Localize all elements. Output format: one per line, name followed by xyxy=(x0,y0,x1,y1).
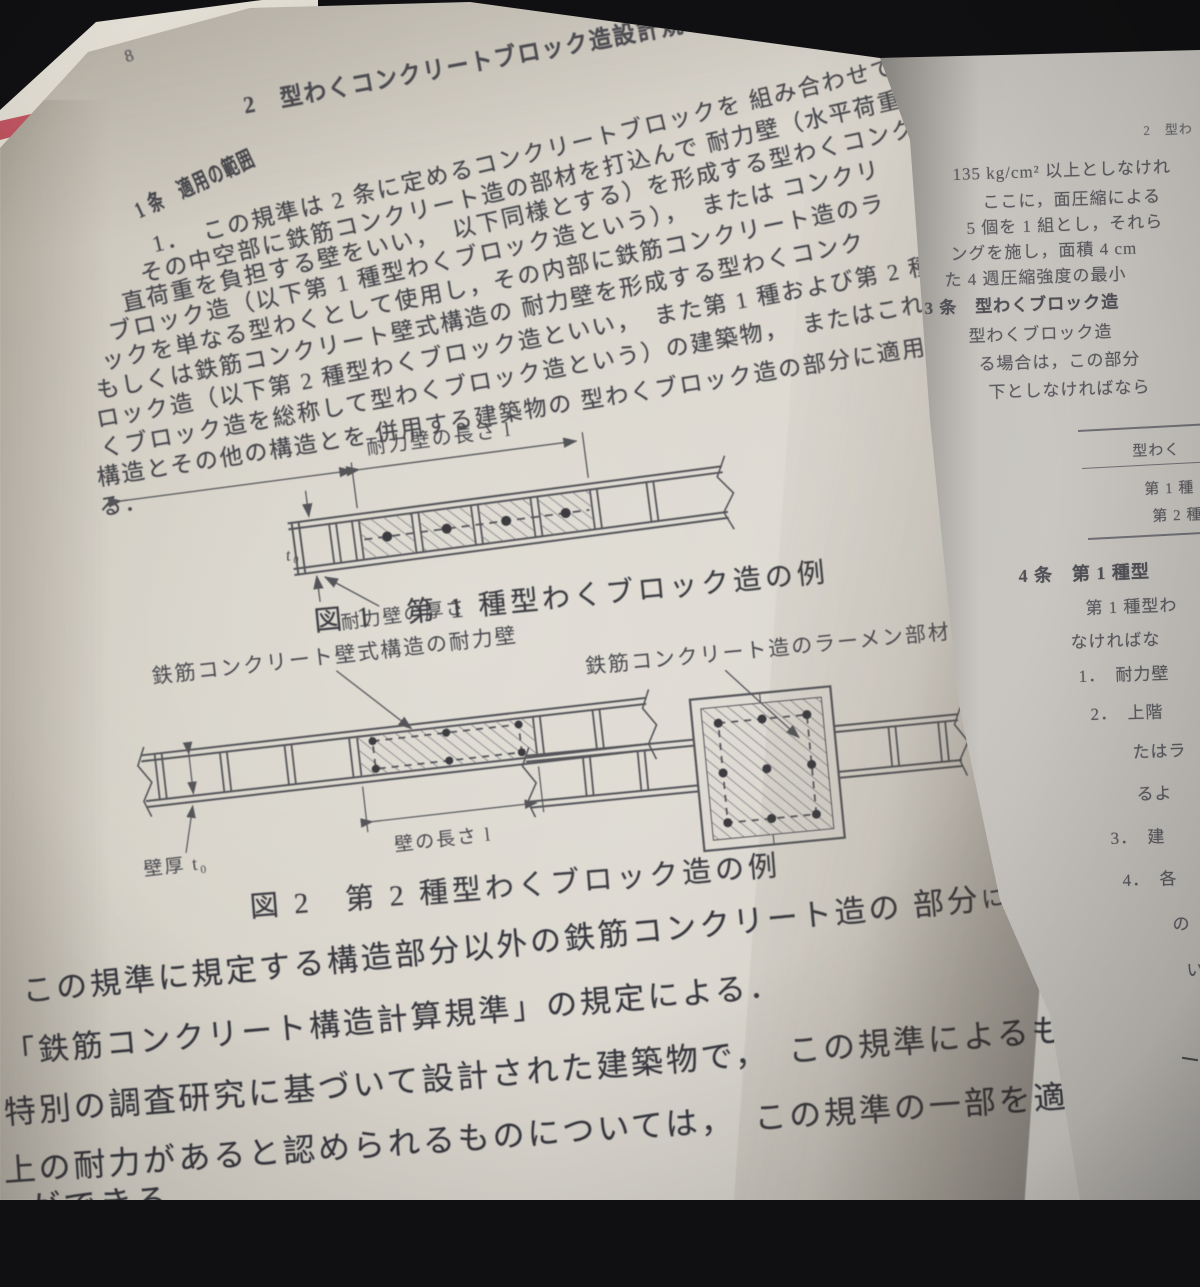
table-row: 第 2 種 xyxy=(1152,503,1200,526)
page-number: 8 xyxy=(122,45,138,67)
table-rule xyxy=(1078,423,1200,432)
text-line: 3 条 型わくブロック造 xyxy=(924,287,1120,319)
text-line: なければな xyxy=(1070,625,1161,653)
text-line: る． xyxy=(96,481,151,522)
fig2-wall-thickness-label: 壁厚 t₀ xyxy=(142,852,209,881)
table-row: 第 1 種 xyxy=(1144,476,1195,499)
text-line: 第 1 種型わ xyxy=(1085,591,1178,619)
text-line: の xyxy=(1172,909,1191,935)
text-line: い xyxy=(1186,955,1200,981)
text-line: 4 条 第 1 種型 xyxy=(1018,557,1150,588)
text-line: る場合は，この部分 xyxy=(978,344,1141,375)
text-line: 135 kg/cm² 以上としなけれ xyxy=(952,152,1171,185)
fig1-t0-label: t₀ xyxy=(285,544,302,565)
text-line: た 4 週圧縮強度の最小 xyxy=(944,260,1127,291)
right-page-header: 2 型わ xyxy=(1143,118,1193,139)
text-line: 4． 各 xyxy=(1122,864,1178,891)
text-line: るよ xyxy=(1136,779,1173,805)
table-rule xyxy=(1082,461,1200,469)
text-line: 2． 上階 xyxy=(1090,697,1164,725)
text-line: 下としなければなら xyxy=(988,372,1151,403)
text-line: たはラ xyxy=(1132,736,1187,763)
fig2-wall-length-label: 壁の長さ l xyxy=(393,823,493,856)
book-photo: { "colors": { "background": "#101012", "… xyxy=(0,0,1200,1200)
text-line: ができる xyxy=(26,1173,172,1230)
pen-mark xyxy=(1182,1057,1198,1061)
text-line: 1． 耐力壁 xyxy=(1078,659,1170,687)
table-header: 型わく xyxy=(1132,438,1181,461)
table-rule xyxy=(1088,531,1200,540)
text-line: 3． 建 xyxy=(1110,822,1166,849)
fig1-length-label: 耐力壁の長さ l xyxy=(365,417,513,459)
text-line: 型わくブロック造 xyxy=(968,317,1113,347)
